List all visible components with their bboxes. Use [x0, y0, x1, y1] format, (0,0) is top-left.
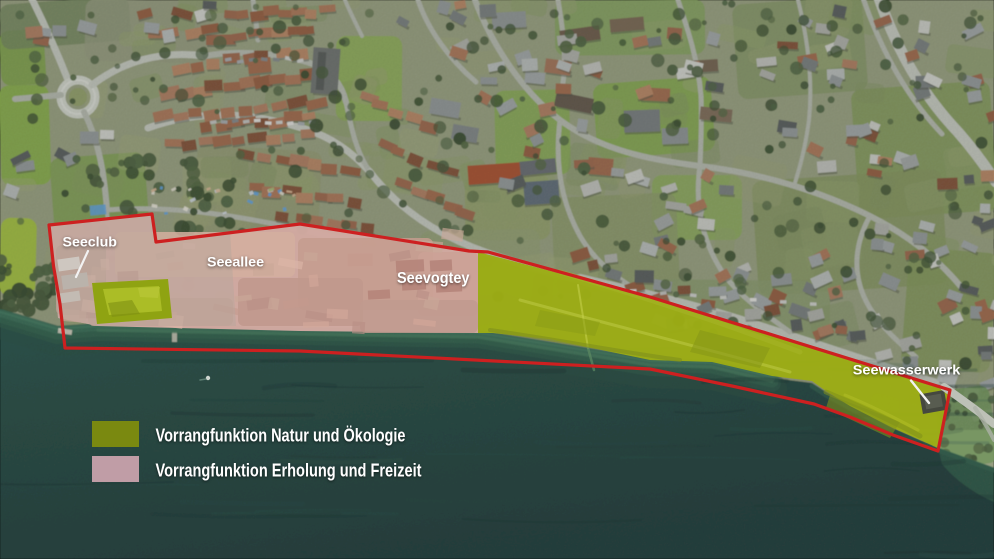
svg-text:Vorrangfunktion Natur und Ökol: Vorrangfunktion Natur und Ökologie [156, 426, 406, 446]
svg-text:Seeclub: Seeclub [63, 235, 118, 250]
svg-text:Vorrangfunktion Erholung und F: Vorrangfunktion Erholung und Freizeit [156, 461, 422, 481]
svg-text:Seevogtey: Seevogtey [397, 270, 470, 287]
svg-text:Seewasserwerk: Seewasserwerk [853, 363, 961, 378]
svg-text:Seeallee: Seeallee [207, 254, 264, 270]
